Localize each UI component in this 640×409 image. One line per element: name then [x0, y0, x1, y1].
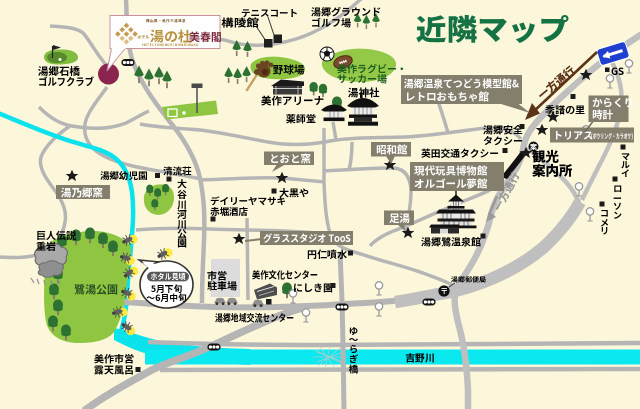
svg-text:薬師堂: 薬師堂 [286, 111, 317, 126]
svg-text:足湯: 足湯 [389, 211, 410, 226]
svg-text:重岩: 重岩 [36, 238, 56, 253]
svg-text:時計: 時計 [592, 108, 613, 123]
svg-text:湯郷幼児園: 湯郷幼児園 [100, 168, 148, 182]
svg-text:〒: 〒 [440, 286, 448, 297]
svg-text:構陵館: 構陵館 [221, 16, 260, 31]
svg-text:鷺湯公園: 鷺湯公園 [74, 282, 118, 298]
svg-text:吉野川: 吉野川 [405, 350, 435, 365]
svg-text:湯神社: 湯神社 [348, 86, 380, 101]
svg-text:グラススタジオ TooS: グラススタジオ TooS [263, 230, 351, 245]
svg-text:季譜の里: 季譜の里 [544, 102, 585, 117]
svg-text:清流荘: 清流荘 [163, 164, 192, 178]
svg-text:岡山県・美作三湯温泉: 岡山県・美作三湯温泉 [146, 18, 186, 24]
svg-text:野球場: 野球場 [273, 63, 305, 78]
svg-text:湯郷地域交流センター: 湯郷地域交流センター [215, 310, 294, 325]
svg-text:湯郷鷺温泉館: 湯郷鷺温泉館 [421, 234, 481, 249]
svg-text:オルゴール夢館: オルゴール夢館 [414, 177, 488, 192]
svg-text:露天風呂: 露天風呂 [94, 362, 134, 377]
svg-text:美作アリーナ: 美作アリーナ [261, 94, 324, 109]
svg-text:ホテル: ホテル [137, 35, 150, 41]
svg-text:GS: GS [611, 63, 624, 78]
svg-text:湯郷郵便局: 湯郷郵便局 [451, 275, 486, 285]
svg-text:〜6月中旬: 〜6月中旬 [146, 291, 187, 304]
svg-text:昭和館: 昭和館 [376, 143, 408, 158]
svg-text:円仁噴水: 円仁噴水 [307, 246, 348, 261]
svg-text:ローソン: ローソン [611, 184, 624, 220]
svg-text:赤堀酒店: 赤堀酒店 [209, 204, 249, 218]
svg-text:サッカー場: サッカー場 [337, 71, 387, 86]
svg-text:レトロおもちゃ館: レトロおもちゃ館 [405, 90, 489, 105]
svg-text:ゆ〜らぎ橋: ゆ〜らぎ橋 [347, 325, 361, 373]
svg-text:案内所: 案内所 [532, 160, 573, 180]
svg-text:とおと窯: とおと窯 [269, 152, 311, 167]
svg-text:ゴルフクラブ: ゴルフクラブ [38, 75, 94, 90]
svg-text:駐車場: 駐車場 [207, 278, 237, 293]
svg-text:ゴルフ場: ゴルフ場 [311, 15, 351, 30]
svg-text:英田交通タクシー: 英田交通タクシー [421, 145, 499, 160]
svg-text:コメリ: コメリ [598, 208, 611, 235]
svg-text:HOTEL YUNOMORI MIHARUKAKU: HOTEL YUNOMORI MIHARUKAKU [142, 42, 198, 47]
svg-text:大谷川河川公園: 大谷川河川公園 [175, 179, 189, 248]
svg-text:大黒や: 大黒や [279, 185, 309, 200]
svg-text:(ボウリング・カラオケ): (ボウリング・カラオケ) [591, 131, 633, 141]
svg-text:湯乃郷窯: 湯乃郷窯 [61, 186, 103, 201]
svg-text:マルイ: マルイ [619, 151, 632, 178]
svg-text:ホタル見頃: ホタル見頃 [151, 272, 187, 283]
svg-text:近隣マップ: 近隣マップ [416, 7, 569, 49]
svg-text:にしき園: にしき園 [293, 280, 333, 295]
